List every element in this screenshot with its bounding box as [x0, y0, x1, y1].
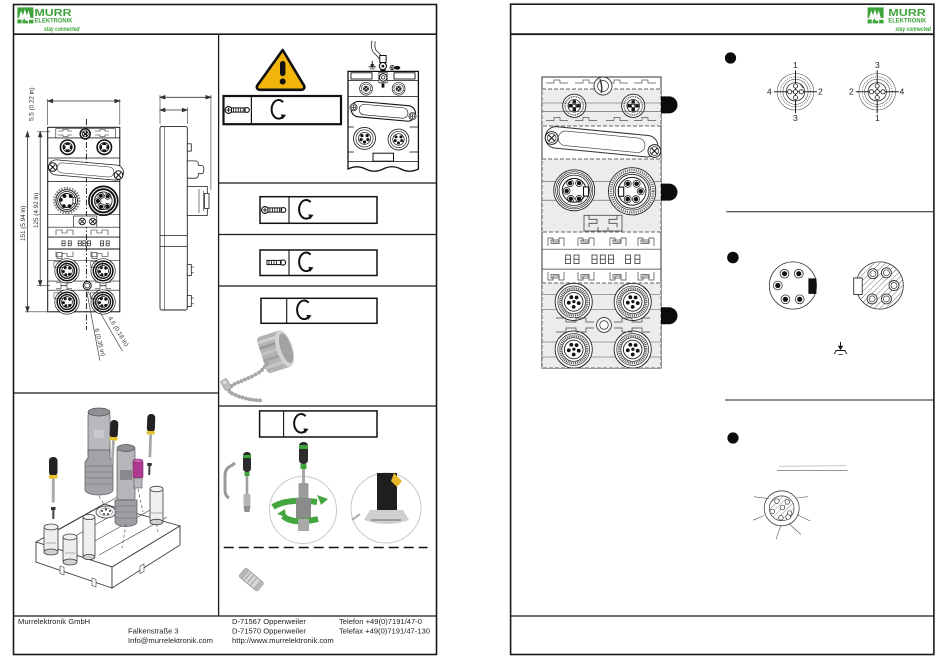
svg-text:2: 2 [818, 87, 823, 97]
svg-text:Falkenstraße 3: Falkenstraße 3 [128, 627, 179, 636]
svg-text:4: 4 [767, 87, 772, 97]
svg-text:Telefon +49(0)7191/47-0: Telefon +49(0)7191/47-0 [339, 617, 422, 626]
svg-text:4: 4 [900, 87, 905, 97]
svg-text:stay connected: stay connected [44, 27, 80, 33]
svg-text:ELEKTRONIK: ELEKTRONIK [888, 17, 926, 24]
svg-text:2: 2 [849, 87, 854, 97]
svg-text:3: 3 [793, 113, 798, 123]
svg-text:3: 3 [875, 60, 880, 70]
svg-text:1: 1 [875, 113, 880, 123]
svg-text:Info@murrelektronik.com: Info@murrelektronik.com [128, 636, 213, 645]
svg-text:Telefax +49(0)7191/47-130: Telefax +49(0)7191/47-130 [339, 627, 430, 636]
svg-text:Murrelektronik GmbH: Murrelektronik GmbH [18, 617, 90, 626]
svg-text:D-71570 Oppenweiler: D-71570 Oppenweiler [232, 627, 306, 636]
svg-text:http://www.murrelektronik.com: http://www.murrelektronik.com [232, 636, 334, 645]
svg-text:5,5 (0.22 in): 5,5 (0.22 in) [29, 87, 36, 121]
svg-text:stay connected: stay connected [895, 27, 931, 33]
svg-text:1: 1 [793, 60, 798, 70]
svg-text:125 (4.92 in): 125 (4.92 in) [33, 193, 40, 228]
svg-text:D-71567 Oppenweiler: D-71567 Oppenweiler [232, 617, 306, 626]
svg-text:ELEKTRONIK: ELEKTRONIK [35, 17, 73, 24]
svg-text:151 (5.94 in): 151 (5.94 in) [20, 206, 27, 241]
